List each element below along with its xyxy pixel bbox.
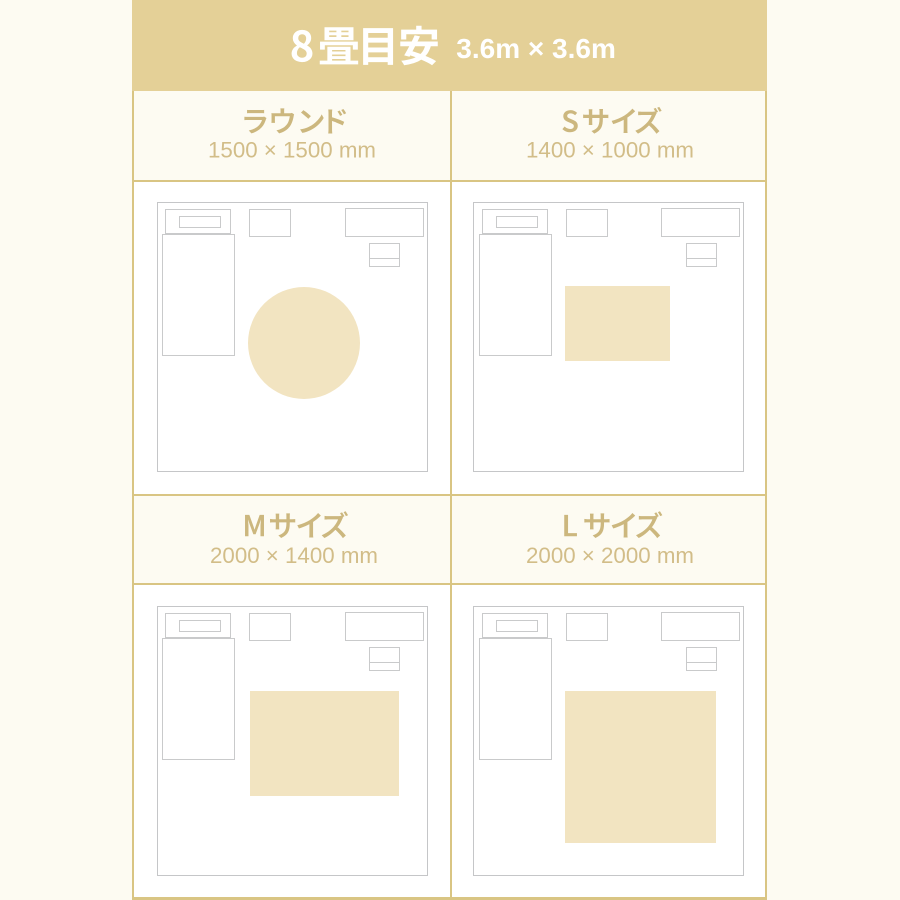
svg-text:1500 × 1500 mm: 1500 × 1500 mm: [208, 137, 376, 162]
svg-text:2000 × 1400 mm: 2000 × 1400 mm: [210, 543, 378, 568]
svg-text:1400 × 1000 mm: 1400 × 1000 mm: [526, 137, 694, 162]
svg-text:3.6m × 3.6m: 3.6m × 3.6m: [456, 33, 616, 64]
svg-text:2000 × 2000 mm: 2000 × 2000 mm: [526, 543, 694, 568]
